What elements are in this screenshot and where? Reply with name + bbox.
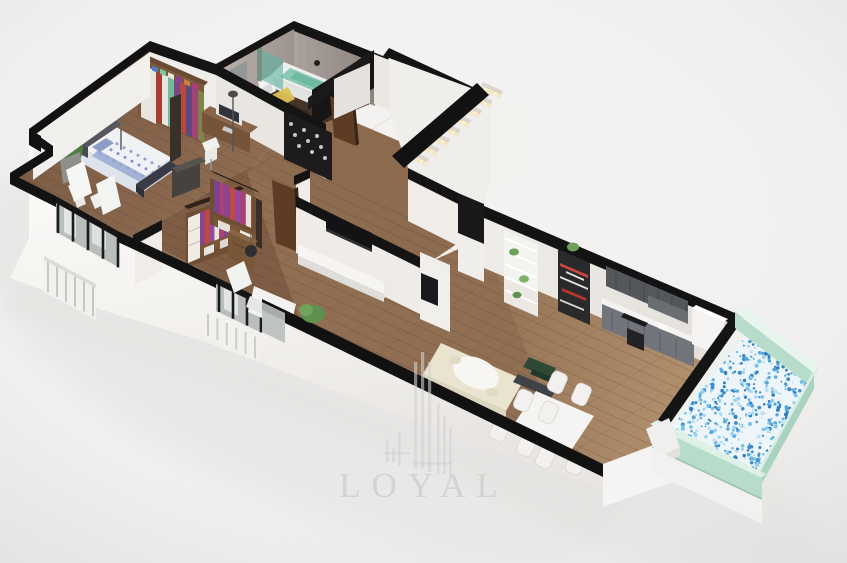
svg-text:LOYAL: LOYAL: [339, 466, 509, 505]
